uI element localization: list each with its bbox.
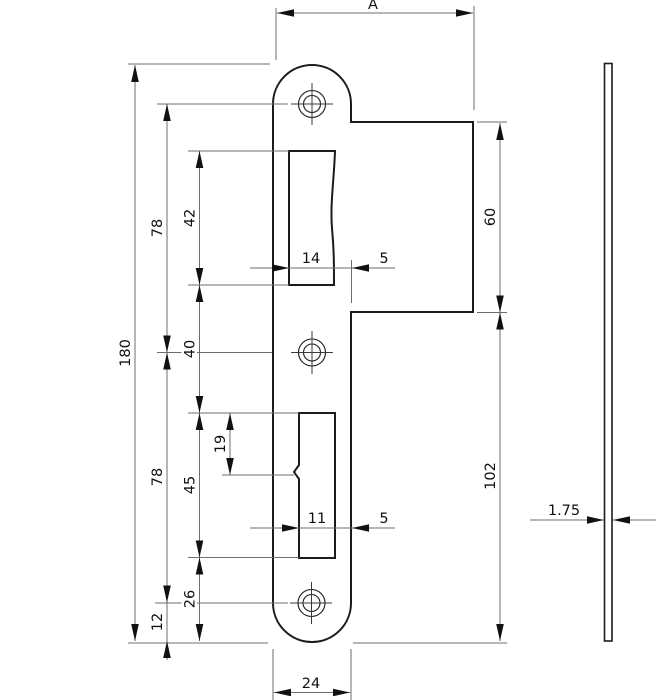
dim-60-label: 60 [483, 208, 499, 226]
dim-78a-arrow-top [163, 104, 171, 121]
dim-total-height-180: 180 [118, 65, 139, 641]
dim-5-lower-label: 5 [379, 511, 388, 527]
dim-45-arrow-top [196, 413, 204, 430]
dim-24-label: 24 [302, 676, 320, 692]
dim-tab-height-60: 60 [483, 123, 504, 313]
dim-5-lower-arrow [352, 524, 369, 532]
dim-40-arrow-top [196, 285, 204, 302]
dim-45-arrow-bottom [196, 541, 204, 558]
dim-45-label: 45 [183, 476, 199, 494]
dim-60-arrow-bottom [496, 296, 504, 313]
dim-180-arrow-bottom [131, 624, 139, 641]
dim-5-upper-label: 5 [379, 251, 388, 267]
dim-12-label: 12 [150, 613, 166, 631]
dim-102-arrow-top [496, 313, 504, 330]
dim-14-arrow [272, 264, 289, 272]
dim-a-arrow-left [277, 9, 294, 17]
dim-hole-to-bottom-12: 12 [150, 603, 171, 661]
dim-78b-label: 78 [150, 468, 166, 486]
dim-42-arrow-bottom [196, 268, 204, 285]
dim-plate-thickness-175: 1.75 [530, 503, 656, 524]
side-view-plate [605, 64, 613, 642]
dim-bolt-cutout-width-11-5: 11 5 [250, 511, 395, 532]
dim-78b-arrow-bottom [163, 586, 171, 603]
dim-60-arrow-top [496, 123, 504, 140]
dim-14-label: 14 [302, 251, 320, 267]
dim-cutout-spacing-40: 40 [183, 285, 204, 413]
dim-26-arrow-bottom [196, 624, 204, 641]
dim-bolt-cutout-height-45: 45 [183, 413, 204, 558]
dim-19-arrow-top [226, 413, 234, 430]
front-view [273, 65, 473, 642]
dim-175-arrow-right [613, 516, 630, 524]
dim-175-label: 1.75 [548, 503, 580, 519]
dim-5-upper-arrow [352, 264, 369, 272]
dim-11-arrow [282, 524, 299, 532]
dim-plate-width-24: 24 [274, 676, 350, 696]
dim-40-label: 40 [183, 340, 199, 358]
dim-a-arrow-right [456, 9, 473, 17]
dim-19-arrow-bottom [226, 458, 234, 475]
dim-26-label: 26 [183, 590, 199, 608]
dim-102-label: 102 [483, 462, 499, 490]
side-view [605, 64, 613, 642]
dim-78a-arrow-bottom [163, 336, 171, 353]
dim-a: A [277, 0, 473, 17]
dim-102-arrow-bottom [496, 624, 504, 641]
dim-11-label: 11 [308, 511, 326, 527]
dim-19-label: 19 [213, 435, 229, 453]
dim-bolt-cutout-to-bottom-26: 26 [183, 558, 204, 642]
dim-175-arrow-left [587, 516, 604, 524]
dim-78a-label: 78 [150, 219, 166, 237]
strike-plate-drawing: A 180 78 78 12 42 40 45 [0, 0, 658, 700]
screw-hole-bottom [290, 582, 332, 624]
dim-180-label: 180 [118, 339, 134, 367]
deadbolt-cutout [294, 413, 335, 558]
dim-42-label: 42 [183, 209, 199, 227]
drawing-svg: A 180 78 78 12 42 40 45 [0, 0, 658, 700]
dim-bolt-lip-offset-19: 19 [213, 413, 234, 475]
screw-hole-top [291, 83, 333, 125]
screw-hole-middle [291, 331, 333, 374]
dim-12-arrow-bottom [163, 641, 171, 658]
dim-180-arrow-top [131, 65, 139, 82]
dim-latch-cutout-width-14-5: 14 5 [250, 251, 395, 272]
dim-26-arrow-top [196, 558, 204, 575]
dim-a-label: A [368, 0, 378, 13]
dim-latch-cutout-height-42: 42 [183, 151, 204, 285]
dim-24-arrow-left [274, 689, 291, 697]
dim-42-arrow-top [196, 151, 204, 168]
dim-upper-hole-pitch-78: 78 [150, 104, 171, 353]
dim-40-arrow-bottom [196, 396, 204, 413]
dim-lower-hole-pitch-78: 78 [150, 353, 171, 603]
dim-24-arrow-right [333, 689, 350, 697]
dim-below-tab-height-102: 102 [483, 313, 504, 642]
dim-78b-arrow-top [163, 353, 171, 370]
